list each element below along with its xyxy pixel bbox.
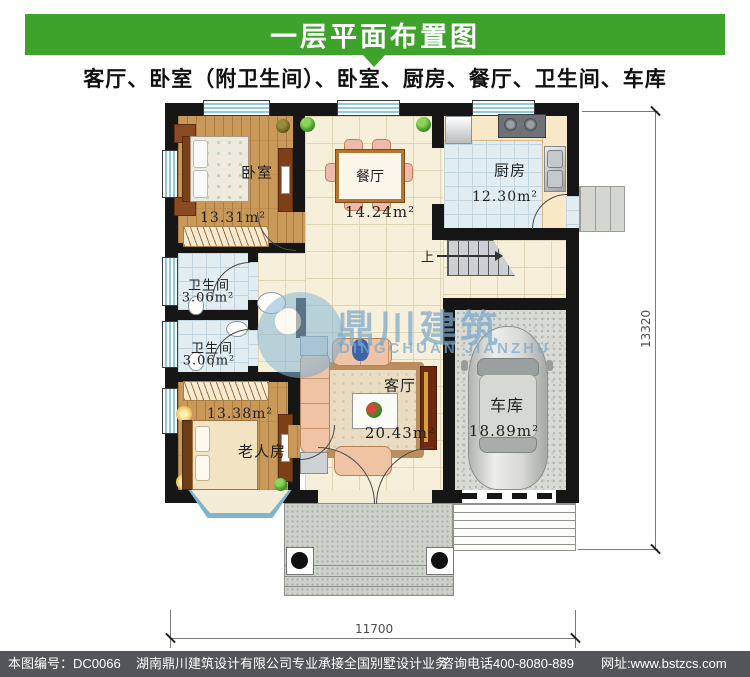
window-dining-top xyxy=(337,100,400,116)
car-mirror xyxy=(461,360,468,371)
living-label: 客厅 xyxy=(384,375,416,396)
page-title: 一层平面布置图 xyxy=(270,15,480,54)
dining-area: 14.24m² xyxy=(345,203,415,221)
garage-label: 车库 xyxy=(490,392,524,416)
dim-ext-line xyxy=(575,610,576,648)
window-bath1-left xyxy=(162,257,178,306)
dining-table: 餐厅 xyxy=(336,150,404,202)
garage-door-dashed xyxy=(462,493,556,499)
pillow xyxy=(195,426,210,452)
bath2-area: 3.06m² xyxy=(183,354,235,369)
driveway-steps xyxy=(452,503,576,551)
bedroom-area: 13.31m² xyxy=(200,210,266,226)
dim-right-value: 13320 xyxy=(639,312,653,348)
wall-kitchen-left-upper xyxy=(432,116,444,148)
bedroom-label: 卧室 xyxy=(241,162,273,183)
plant-icon xyxy=(274,478,287,491)
table-flowers xyxy=(366,402,382,418)
stove-burner xyxy=(504,118,517,131)
fridge xyxy=(445,116,472,144)
footer-website: 网址:www.bstzcs.com xyxy=(601,651,727,677)
pillow xyxy=(193,170,208,198)
tv-bedroom xyxy=(281,166,290,194)
stair-direction-arrowhead xyxy=(495,251,503,261)
header-bar: 一层平面布置图 xyxy=(25,14,725,55)
plant-icon xyxy=(416,117,431,132)
plant-icon xyxy=(276,119,290,133)
kitchen-stoop-steps xyxy=(579,186,625,232)
door-gap-elder xyxy=(288,425,300,458)
living-area: 20.43m² xyxy=(365,424,435,442)
dining-label: 餐厅 xyxy=(356,166,384,186)
dim-line-bottom xyxy=(170,638,576,639)
dim-line-right xyxy=(655,111,656,549)
door-gap-kitchen xyxy=(566,196,579,228)
room-list-subtitle: 客厅、卧室（附卫生间）、卧室、厨房、餐厅、卫生间、车库 xyxy=(0,63,750,93)
kitchen-area: 12.30m² xyxy=(472,189,538,205)
stair-direction-line xyxy=(437,255,497,257)
stair-up-label: 上 xyxy=(421,247,435,266)
pillow xyxy=(195,455,210,481)
bath1-area: 3.06m² xyxy=(182,291,234,306)
footer-company: 湖南鼎川建筑设计有限公司专业承接全国别墅设计业务 xyxy=(136,651,448,677)
plant-icon xyxy=(300,117,315,132)
porch-column-shaft xyxy=(291,552,308,569)
stove-burner xyxy=(524,118,537,131)
window-bedroom-left xyxy=(162,150,178,198)
elder-label: 老人房 xyxy=(238,441,286,462)
window-bath2-left xyxy=(162,321,178,368)
dim-bottom-value: 11700 xyxy=(355,622,393,636)
window-bedroom-top xyxy=(203,100,270,116)
dim-ext-line xyxy=(582,111,658,112)
kitchen-label: 厨房 xyxy=(494,160,526,181)
porch-column-shaft xyxy=(431,552,448,569)
sink-basin xyxy=(547,150,563,168)
dim-ext-line xyxy=(170,610,171,648)
porch-step xyxy=(284,586,454,596)
wardrobe-elder xyxy=(183,381,269,401)
pillow xyxy=(193,140,208,168)
footer-phone: 咨询电话400-8080-889 xyxy=(441,651,574,677)
sink-basin xyxy=(547,170,563,188)
watermark-en: DINGCHUAN JIANZHU xyxy=(339,340,551,357)
garage-area: 18.89m² xyxy=(469,422,539,440)
wall-kitchen-bottom xyxy=(432,228,579,240)
footer-plan-number: 本图编号：DC0066 xyxy=(8,651,121,677)
wardrobe-bedroom xyxy=(183,226,269,247)
footer-bar: 本图编号：DC0066 湖南鼎川建筑设计有限公司专业承接全国别墅设计业务 咨询电… xyxy=(0,651,750,677)
car-mirror xyxy=(546,360,553,371)
watermark-logo-icon xyxy=(257,292,343,378)
elder-area: 13.38m² xyxy=(207,406,273,422)
dim-ext-line xyxy=(578,549,658,550)
floorplan-page: { "header": { "title": "一层平面布置图", "subti… xyxy=(0,0,750,677)
